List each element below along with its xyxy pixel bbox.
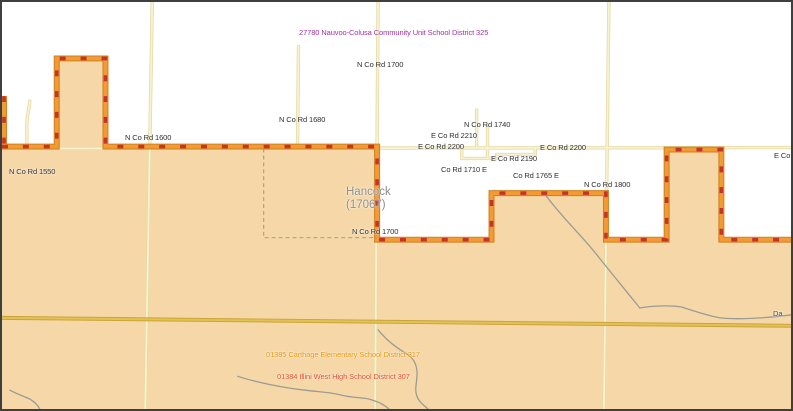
- district-fill-polygon: [2, 58, 791, 409]
- map-viewport[interactable]: 27780 Nauvoo-Colusa Community Unit Schoo…: [0, 0, 793, 411]
- map-graphics: [2, 2, 791, 409]
